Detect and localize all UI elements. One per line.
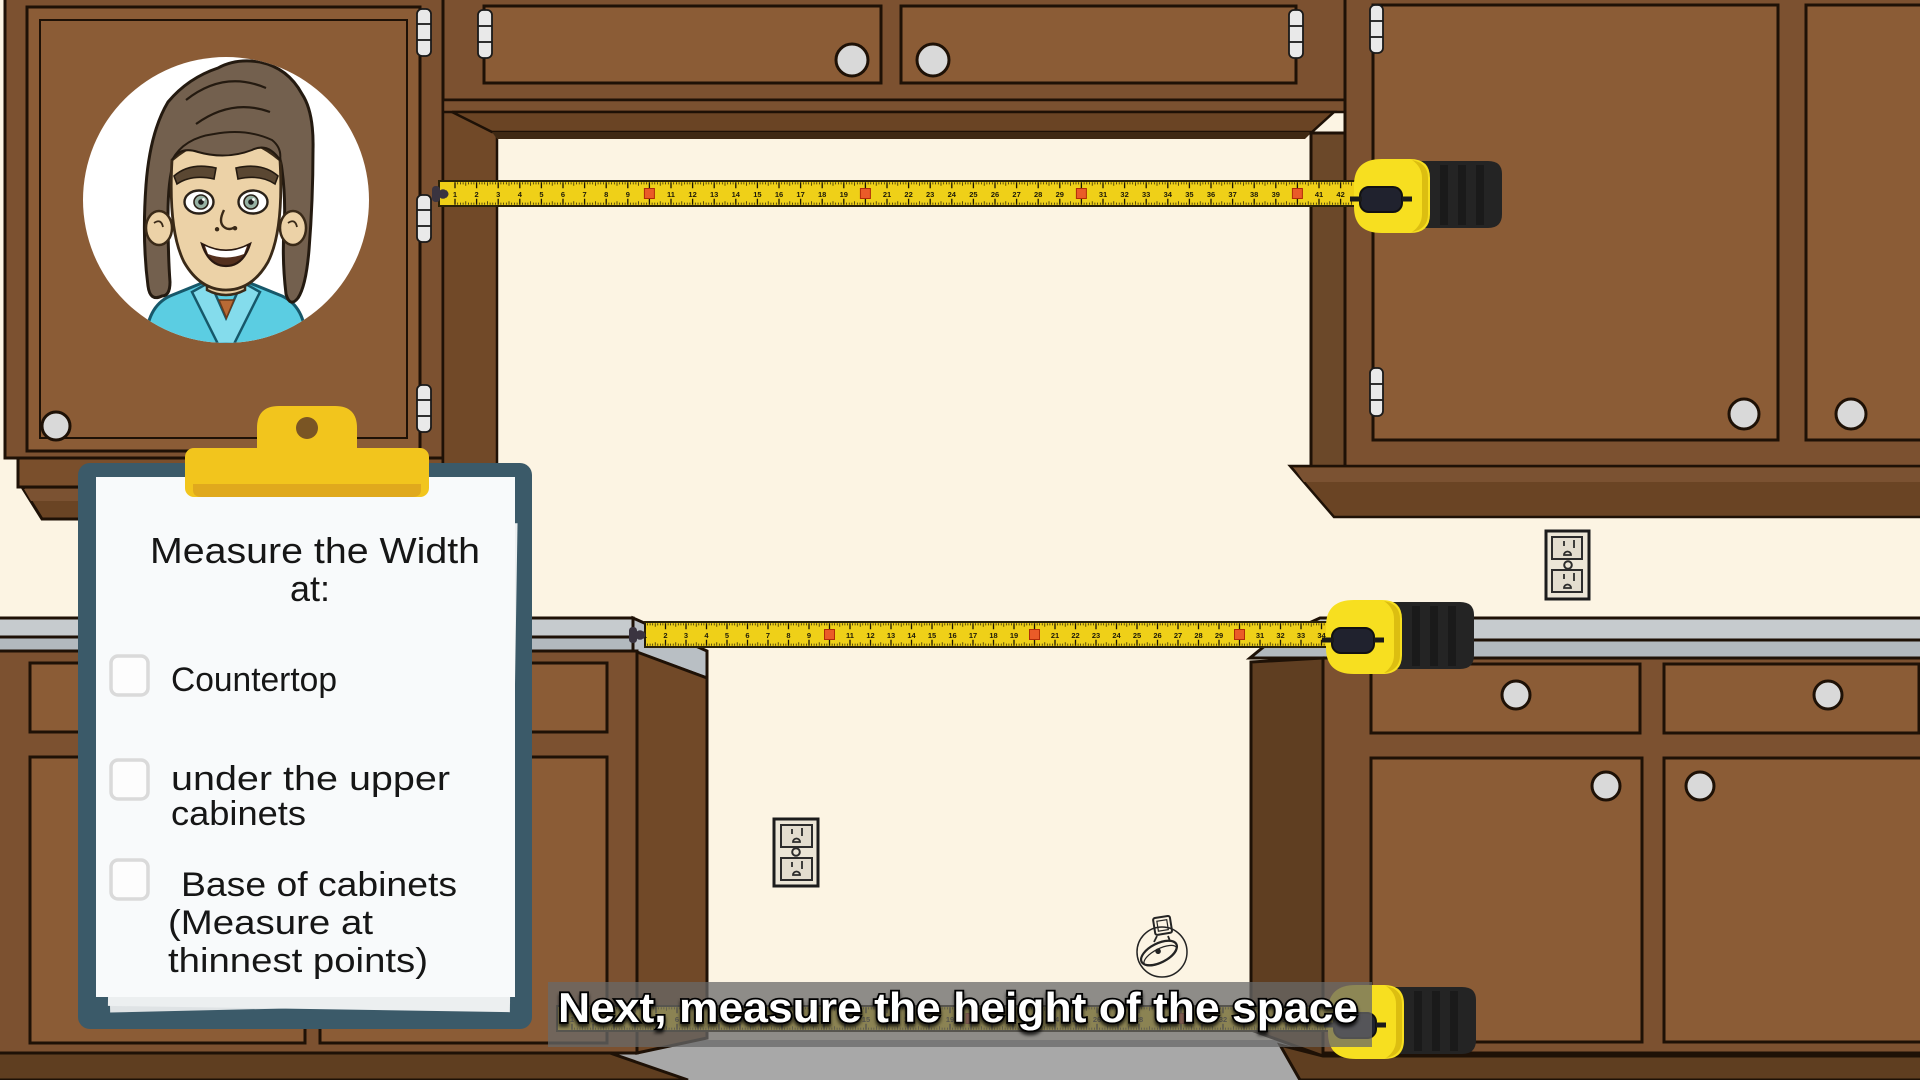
svg-text:31: 31	[1099, 190, 1107, 199]
svg-text:at:: at:	[290, 568, 330, 609]
svg-text:Countertop: Countertop	[171, 661, 337, 699]
svg-text:2: 2	[663, 631, 667, 640]
svg-text:27: 27	[1174, 631, 1182, 640]
svg-text:1: 1	[453, 190, 457, 199]
svg-text:13: 13	[887, 631, 895, 640]
svg-text:12: 12	[866, 631, 874, 640]
svg-text:26: 26	[1153, 631, 1161, 640]
svg-text:31: 31	[1256, 631, 1264, 640]
svg-text:17: 17	[796, 190, 804, 199]
svg-text:39: 39	[1272, 190, 1280, 199]
svg-text:37: 37	[1228, 190, 1236, 199]
svg-text:18: 18	[818, 190, 826, 199]
svg-text:23: 23	[926, 190, 934, 199]
svg-text:14: 14	[732, 190, 741, 199]
svg-text:22: 22	[904, 190, 912, 199]
svg-text:6: 6	[561, 190, 565, 199]
svg-text:7: 7	[583, 190, 587, 199]
svg-text:23: 23	[1092, 631, 1100, 640]
svg-text:15: 15	[753, 190, 761, 199]
svg-text:22: 22	[1071, 631, 1079, 640]
svg-text:38: 38	[1250, 190, 1258, 199]
svg-text:17: 17	[969, 631, 977, 640]
svg-text:Measure the Width: Measure the Width	[150, 530, 480, 571]
svg-text:14: 14	[907, 631, 916, 640]
svg-text:11: 11	[667, 190, 675, 199]
svg-text:29: 29	[1215, 631, 1223, 640]
svg-text:28: 28	[1194, 631, 1202, 640]
svg-text:18: 18	[989, 631, 997, 640]
svg-text:Base of cabinets: Base of cabinets	[181, 866, 457, 904]
svg-text:3: 3	[496, 190, 500, 199]
svg-text:42: 42	[1336, 190, 1344, 199]
svg-text:16: 16	[775, 190, 783, 199]
svg-text:6: 6	[745, 631, 749, 640]
svg-text:13: 13	[710, 190, 718, 199]
svg-text:8: 8	[604, 190, 608, 199]
svg-text:2: 2	[475, 190, 479, 199]
svg-text:9: 9	[807, 631, 811, 640]
svg-text:15: 15	[928, 631, 936, 640]
svg-text:33: 33	[1297, 631, 1305, 640]
svg-text:28: 28	[1034, 190, 1042, 199]
svg-text:29: 29	[1056, 190, 1064, 199]
svg-text:35: 35	[1185, 190, 1193, 199]
svg-text:32: 32	[1120, 190, 1128, 199]
svg-text:36: 36	[1207, 190, 1215, 199]
svg-text:19: 19	[1010, 631, 1018, 640]
svg-text:cabinets: cabinets	[171, 795, 306, 833]
svg-text:7: 7	[766, 631, 770, 640]
svg-text:Next, measure the height of th: Next, measure the height of the space	[558, 984, 1358, 1031]
svg-text:3: 3	[684, 631, 688, 640]
svg-text:25: 25	[1133, 631, 1141, 640]
svg-text:9: 9	[626, 190, 630, 199]
svg-text:12: 12	[688, 190, 696, 199]
svg-text:19: 19	[840, 190, 848, 199]
svg-text:41: 41	[1315, 190, 1323, 199]
svg-text:25: 25	[969, 190, 977, 199]
svg-text:33: 33	[1142, 190, 1150, 199]
svg-text:32: 32	[1276, 631, 1284, 640]
svg-text:5: 5	[725, 631, 729, 640]
svg-text:8: 8	[786, 631, 790, 640]
svg-text:under the upper: under the upper	[171, 760, 450, 798]
svg-text:21: 21	[883, 190, 891, 199]
svg-text:21: 21	[1051, 631, 1059, 640]
svg-text:27: 27	[1012, 190, 1020, 199]
svg-text:34: 34	[1164, 190, 1173, 199]
svg-text:16: 16	[948, 631, 956, 640]
svg-text:11: 11	[846, 631, 854, 640]
svg-text:5: 5	[539, 190, 543, 199]
svg-text:24: 24	[948, 190, 957, 199]
svg-text:(Measure at: (Measure at	[168, 904, 374, 942]
svg-text:thinnest points): thinnest points)	[168, 942, 428, 980]
svg-text:24: 24	[1112, 631, 1121, 640]
svg-text:26: 26	[991, 190, 999, 199]
